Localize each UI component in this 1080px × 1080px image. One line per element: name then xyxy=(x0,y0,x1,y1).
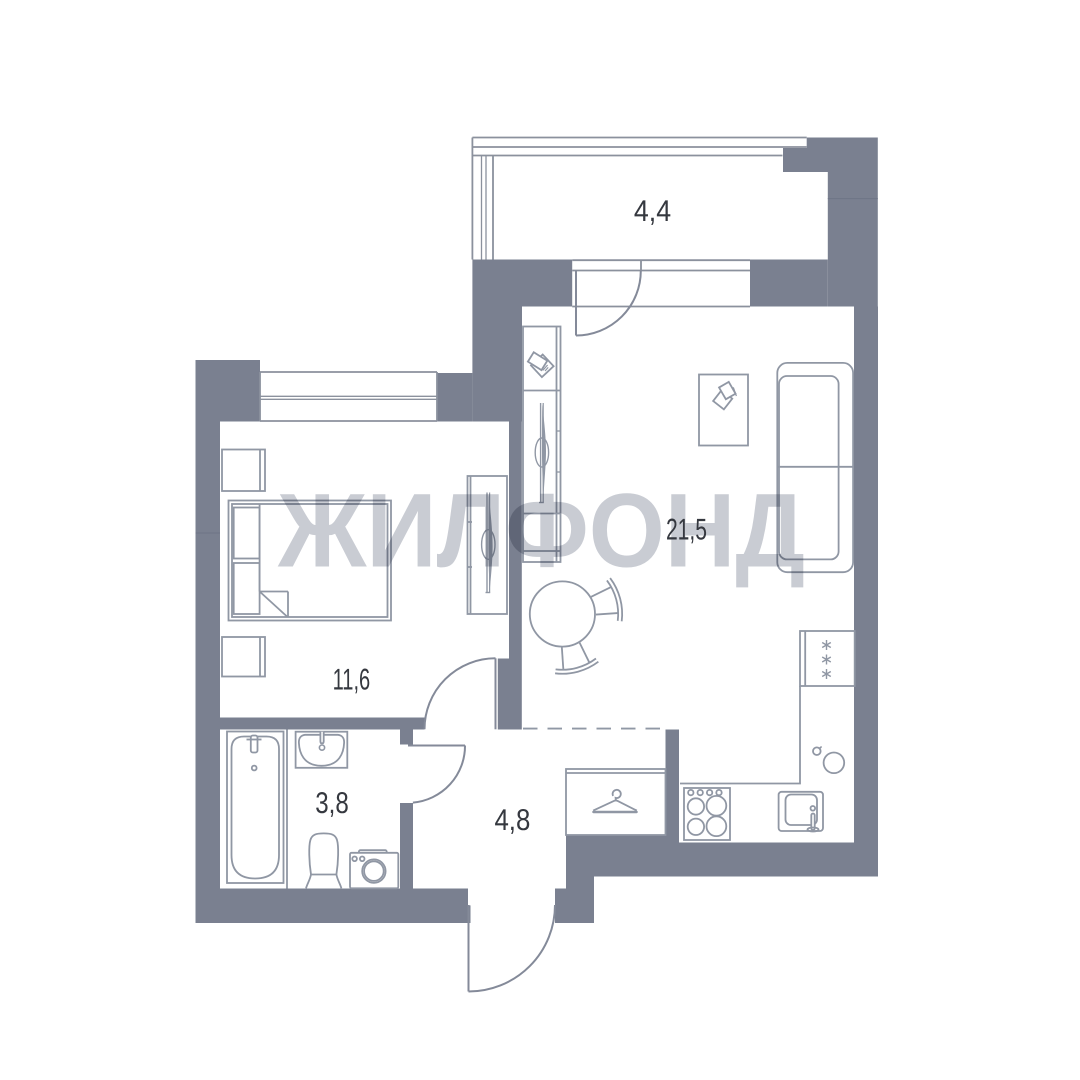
svg-text:4,4: 4,4 xyxy=(634,195,671,228)
svg-text:11,6: 11,6 xyxy=(333,664,371,697)
svg-text:ЖИЛФОНД: ЖИЛФОНД xyxy=(277,473,805,590)
svg-text:4,8: 4,8 xyxy=(494,804,530,837)
svg-text:3,8: 3,8 xyxy=(315,787,349,820)
svg-text:21,5: 21,5 xyxy=(666,513,707,546)
